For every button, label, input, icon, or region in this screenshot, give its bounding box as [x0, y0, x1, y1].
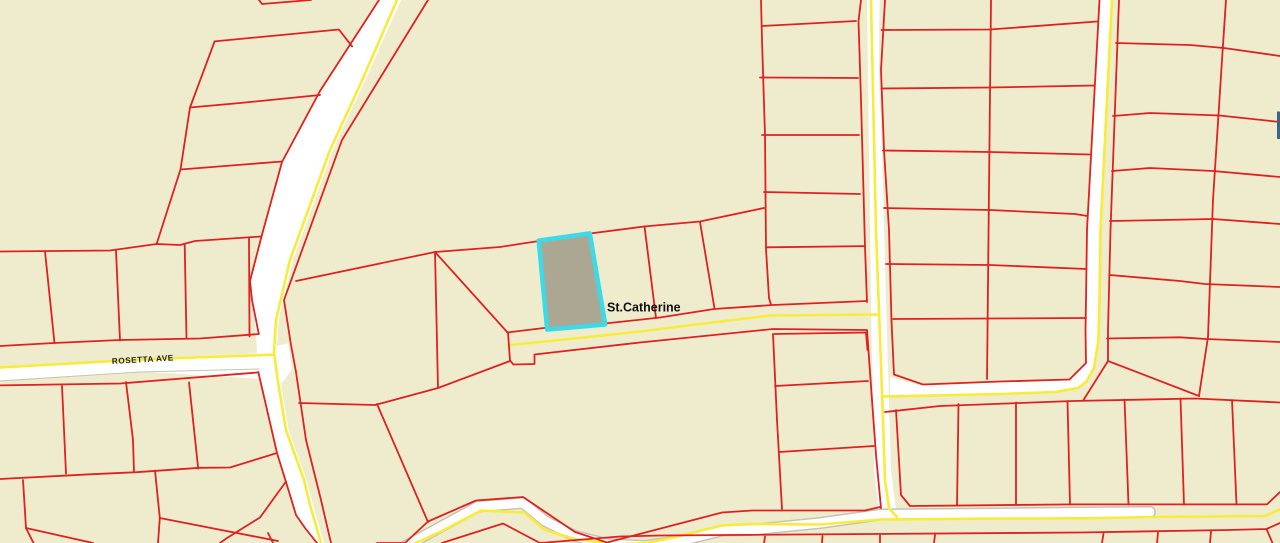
svg-text:St.Catherine: St.Catherine	[607, 301, 681, 315]
